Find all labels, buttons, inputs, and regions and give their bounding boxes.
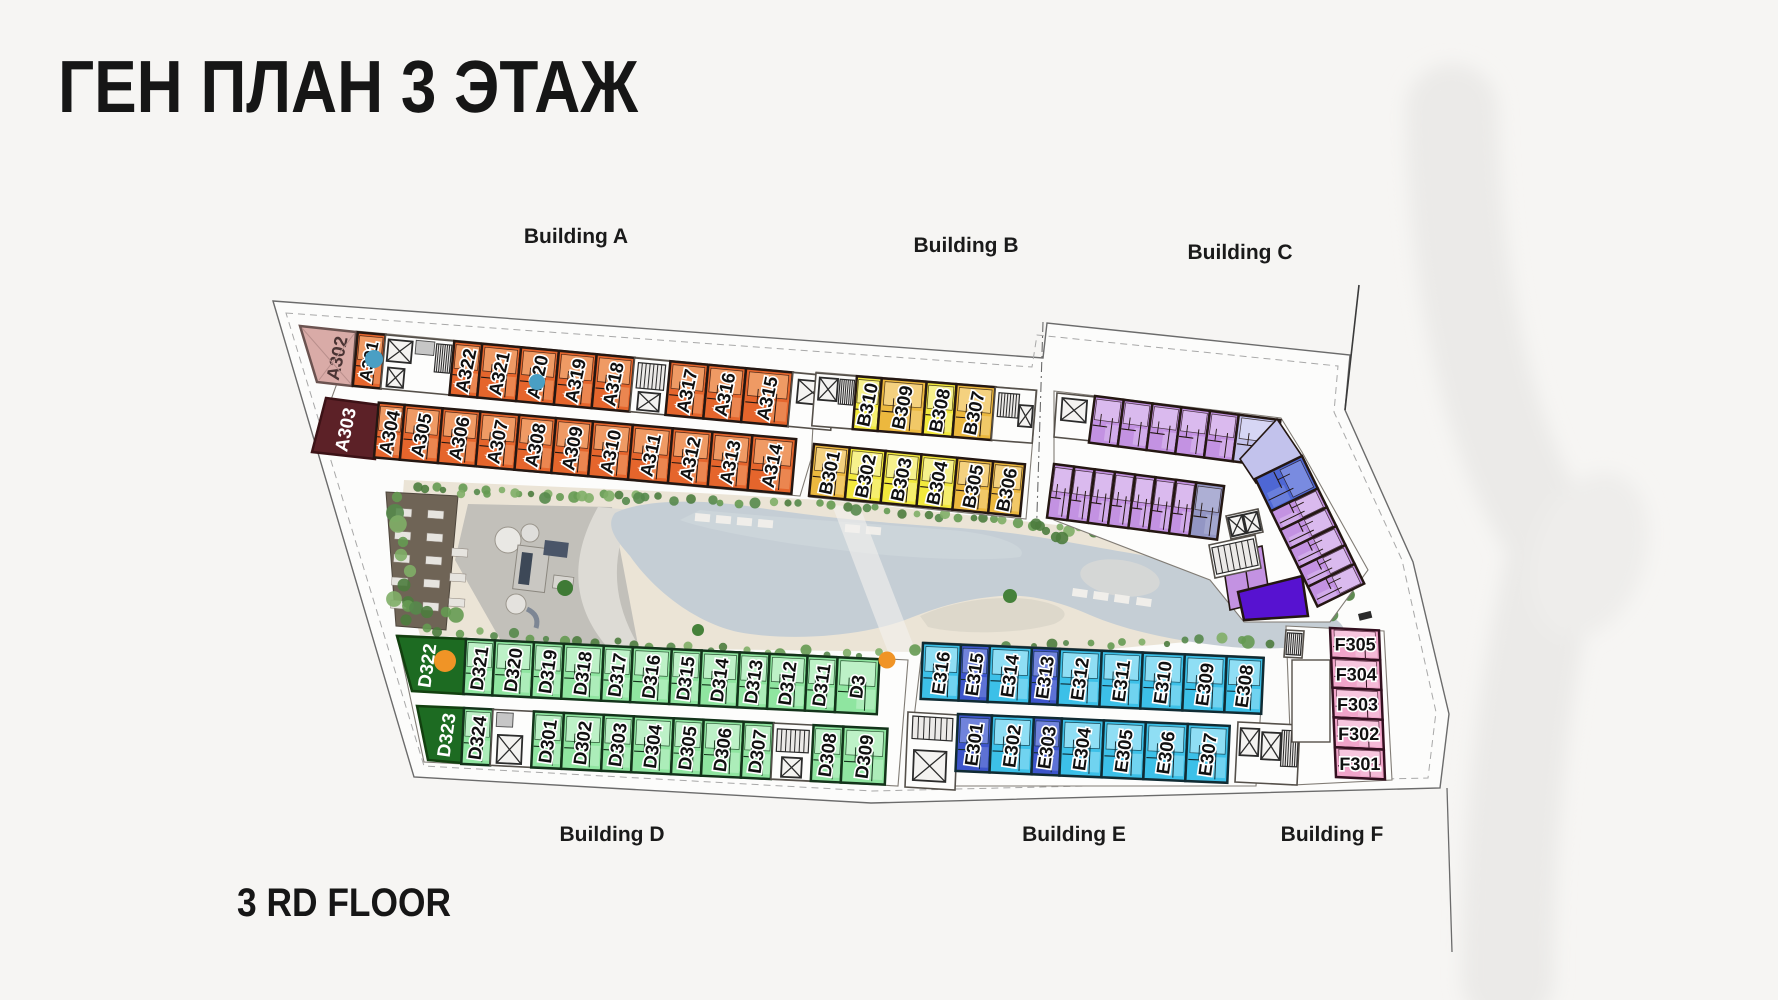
svg-text:3 RD FLOOR: 3 RD FLOOR (237, 881, 451, 925)
svg-text:D3: D3 (845, 674, 869, 700)
svg-text:Building A: Building A (524, 225, 628, 248)
svg-text:F302: F302 (1338, 724, 1379, 744)
svg-text:F303: F303 (1337, 694, 1378, 714)
svg-text:Building C: Building C (1188, 241, 1293, 264)
svg-text:ГЕН ПЛАН 3 ЭТАЖ: ГЕН ПЛАН 3 ЭТАЖ (58, 45, 639, 128)
svg-text:F301: F301 (1339, 754, 1380, 774)
svg-text:F305: F305 (1335, 635, 1376, 655)
svg-text:Building E: Building E (1022, 823, 1126, 846)
svg-text:F304: F304 (1336, 665, 1377, 685)
svg-text:Building B: Building B (914, 234, 1019, 257)
svg-text:Building D: Building D (560, 823, 665, 846)
svg-text:Building F: Building F (1281, 823, 1384, 846)
